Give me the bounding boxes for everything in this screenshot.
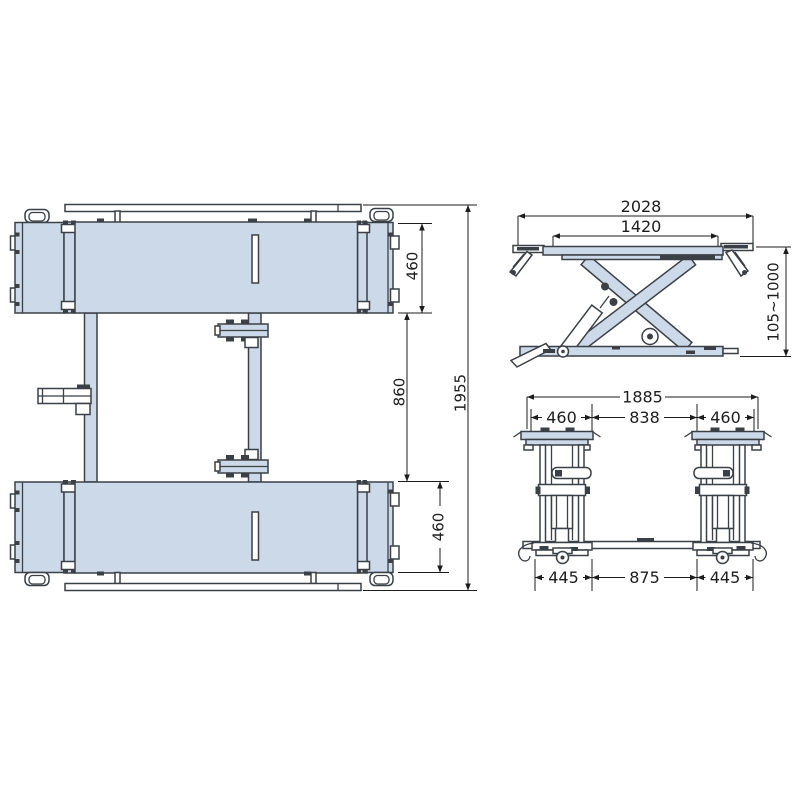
handle-top-left	[25, 210, 49, 223]
side-platform	[543, 247, 723, 260]
dim-label-front-right-platform-width: 460	[710, 408, 741, 427]
scissor-roller	[642, 329, 658, 345]
dim-label-front-base-spacing: 875	[629, 568, 660, 587]
dim-plan-overall: 1955	[452, 368, 470, 418]
scissor-mechanism	[561, 255, 696, 354]
dim-label-side-height-range: 105~1000	[765, 262, 783, 341]
front-view: 1885 460 838 460 445 875 445	[514, 388, 772, 592]
plan-structure	[11, 205, 400, 591]
side-structure	[510, 244, 753, 368]
drawing-page: 460 860 460 1955	[0, 0, 800, 800]
dim-side-height: 105~1000	[765, 260, 783, 344]
dim-plan-gap: 860	[391, 371, 409, 413]
top-platform-assembly	[11, 205, 400, 314]
ramp-left	[510, 246, 544, 277]
dim-label-front-overall-width: 1885	[622, 388, 663, 407]
dim-label-side-overall-length: 2028	[621, 197, 662, 216]
technical-drawing-canvas: 460 860 460 1955	[0, 0, 800, 800]
dim-plan-platform-top: 460	[404, 245, 422, 287]
tow-bracket	[38, 385, 91, 415]
dim-label-plan-overall-length: 1955	[452, 374, 470, 412]
handle-bottom-left	[25, 573, 49, 586]
side-base	[511, 344, 738, 368]
bottom-platform-assembly	[11, 480, 400, 591]
dim-label-front-right-base-width: 445	[710, 568, 741, 587]
ramp-right	[721, 244, 753, 277]
handle-top-right	[370, 209, 393, 222]
dim-label-side-platform-length: 1420	[621, 217, 662, 236]
dim-label-plan-platform-width-bottom: 460	[430, 513, 448, 542]
side-view: 2028 1420 105~1000	[510, 197, 791, 367]
dim-label-plan-platform-gap: 860	[391, 378, 409, 407]
dim-label-front-left-platform-width: 460	[546, 408, 577, 427]
dim-label-front-platform-spacing: 838	[629, 408, 660, 427]
dim-plan-platform-bottom: 460	[430, 506, 448, 548]
handle-bottom-right	[370, 573, 393, 586]
dim-label-plan-platform-width-top: 460	[404, 252, 422, 281]
dim-label-front-left-base-width: 445	[548, 568, 579, 587]
plan-view: 460 860 460 1955	[11, 205, 478, 591]
